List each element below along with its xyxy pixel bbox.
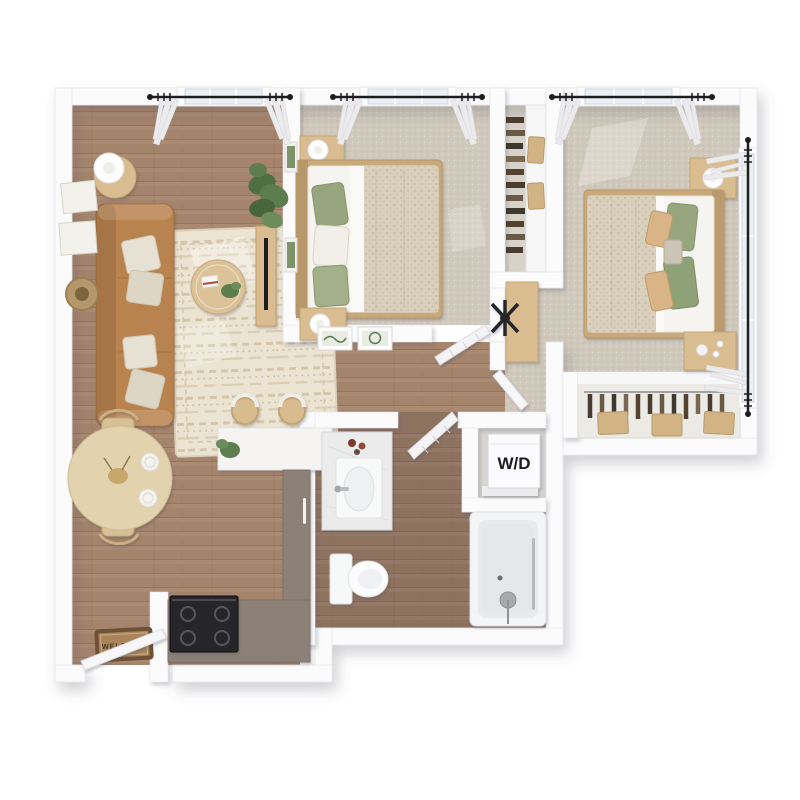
rod-finial — [147, 94, 153, 100]
washer-dryer-label: W/D — [497, 454, 530, 473]
carafe — [697, 345, 708, 356]
kitchen-cabinet-run — [283, 470, 310, 600]
place-setting — [139, 489, 157, 507]
table-lamp-top — [314, 146, 322, 154]
blanket-pattern — [364, 166, 438, 312]
faucet-spout — [340, 487, 349, 491]
storage-box — [703, 411, 734, 435]
plant-leaves — [249, 163, 267, 177]
laundry-nook: W/D — [482, 434, 540, 496]
toilet-seat — [358, 569, 382, 589]
pillow — [313, 225, 350, 267]
soap-dish — [354, 449, 360, 455]
rod-finial — [549, 94, 555, 100]
floor-plan-svg: 3D rendered top-down floor plan of a two… — [0, 0, 800, 800]
blanket-pattern — [588, 196, 658, 332]
wall-art-print — [287, 242, 295, 268]
throw-pillow — [121, 235, 161, 275]
cup — [717, 341, 723, 347]
storage-box — [652, 414, 682, 436]
wall-bedroom2-bottom — [563, 438, 757, 455]
sofa-back — [96, 204, 116, 426]
coffee-table — [191, 260, 245, 314]
tv-console — [256, 226, 276, 326]
wall-left — [55, 88, 72, 682]
wall-art-print — [287, 146, 295, 168]
accent-pillow — [664, 240, 682, 264]
pillow — [313, 265, 350, 307]
wall-mid-right — [546, 342, 563, 645]
rod-finial — [287, 94, 293, 100]
storage-box — [527, 183, 544, 210]
wall-bottom-left-b — [172, 665, 332, 682]
towel-bar — [532, 538, 535, 610]
desk-chair-hub — [500, 313, 510, 323]
wall-closet2-left — [563, 372, 578, 438]
floor-lamp-top — [103, 162, 115, 174]
rod-finial — [479, 94, 485, 100]
round-wall-mirror-center — [75, 287, 89, 301]
sun-pool-bedroom1 — [448, 204, 486, 252]
sheet-fold — [350, 166, 364, 312]
rod-finial — [709, 94, 715, 100]
sofa — [96, 204, 174, 426]
rod-finial — [745, 137, 751, 143]
wall-art-frame — [59, 221, 97, 255]
place-setting — [141, 453, 159, 471]
floor-plan-render: 3D rendered top-down floor plan of a two… — [0, 0, 800, 800]
throw-pillow — [122, 334, 157, 369]
wall-tub-top — [462, 498, 546, 512]
table-centerpiece — [108, 468, 128, 484]
headboard — [296, 160, 308, 318]
soap-dish — [348, 439, 356, 447]
wall-art-frame — [61, 180, 98, 213]
rod-finial — [330, 94, 336, 100]
storage-box — [527, 136, 545, 163]
bed2 — [584, 190, 724, 338]
pillow — [311, 182, 349, 228]
rod-finial — [745, 411, 751, 417]
nightstand — [684, 332, 736, 370]
wall-bath-bottom — [315, 628, 563, 645]
bathtub — [470, 512, 546, 626]
storage-box — [598, 411, 629, 434]
counter-plant-leaf — [216, 439, 228, 449]
range-top — [170, 596, 238, 652]
cup — [713, 351, 719, 357]
wall-bedroom2-door-stub — [490, 342, 505, 370]
appliance-handle — [303, 498, 306, 524]
sofa-arm — [98, 204, 172, 220]
tv-screen-edge — [264, 238, 268, 310]
tub-drain — [498, 576, 503, 581]
vanity — [322, 432, 392, 530]
bedroom2-closet — [578, 372, 740, 438]
range — [170, 596, 238, 652]
throw-pillow — [124, 368, 165, 409]
table-plant-leaf — [231, 282, 241, 290]
soap-dish — [359, 443, 366, 450]
throw-pillow — [126, 270, 164, 306]
bedroom-1 — [285, 136, 442, 340]
wall-bottom-left-a — [55, 665, 85, 682]
bed1 — [296, 160, 442, 318]
wall-bath-top-right — [458, 412, 546, 428]
